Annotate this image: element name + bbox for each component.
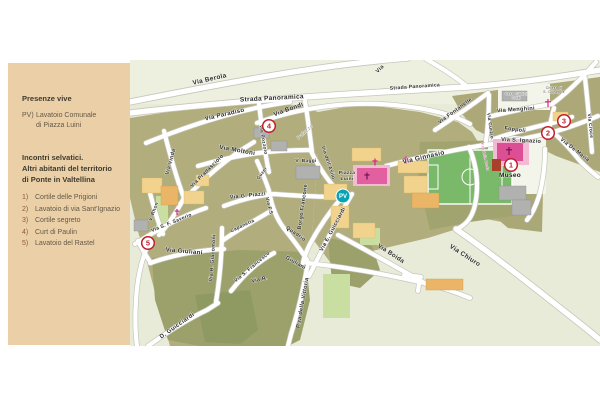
street-label: V. Baggi xyxy=(295,158,316,164)
poi-marker-2: 2 xyxy=(542,127,555,140)
town-map: Via BerolaStrada PanoramicaStrada Panora… xyxy=(130,60,600,346)
museo-annex xyxy=(492,159,501,171)
list-item: 1) Cortile delle Prigioni xyxy=(22,193,122,204)
page: { "panel": { "section1": { "title": "Pre… xyxy=(0,0,600,400)
legend-pv-num: PV) xyxy=(22,111,36,121)
piazza-luini-label: Luini xyxy=(341,176,354,182)
pv-lavatoio-badge: PV xyxy=(336,189,350,203)
svg-text:3: 3 xyxy=(562,117,566,126)
piazza-luini-block xyxy=(357,168,387,184)
svg-text:5: 5 xyxy=(146,239,150,248)
piazza-luini-label: Piazza xyxy=(339,170,355,176)
legend-pv-line2: di Piazza Luini xyxy=(22,121,122,131)
list-item: 3) Cortile segreto xyxy=(22,216,122,227)
legend-pv-line1: Lavatoio Comunale xyxy=(36,111,96,121)
svg-text:PV: PV xyxy=(339,194,347,200)
svg-text:2: 2 xyxy=(546,129,550,138)
poi-marker-1: 1 xyxy=(505,159,518,172)
legend-title-presenze: Presenze vive xyxy=(22,93,122,104)
chiesa-s-giuseppe-label: S. Giuseppe xyxy=(543,90,564,94)
legend-pv-entry: PV) Lavatoio Comunale di Piazza Luini xyxy=(22,111,122,131)
list-item: 5) Lavatoio del Rastel xyxy=(22,239,122,250)
svg-text:1: 1 xyxy=(509,161,513,170)
casa-giudici-label: Curzi xyxy=(511,96,520,100)
legend-panel: Presenze vive PV) Lavatoio Comunale di P… xyxy=(8,63,130,345)
poi-marker-3: 3 xyxy=(558,115,571,128)
legend-title-incontri: Incontri selvatici. Altri abitanti del t… xyxy=(22,152,122,185)
poi-marker-5: 5 xyxy=(142,237,155,250)
poi-marker-4: 4 xyxy=(263,120,276,133)
list-item: 4) Curt di Paulin xyxy=(22,228,122,239)
museo-label: Museo xyxy=(499,172,521,179)
list-item: 2) Lavatoio di via Sant'Ignazio xyxy=(22,205,122,216)
legend-list: 1) Cortile delle Prigioni 2) Lavatoio di… xyxy=(22,193,122,250)
